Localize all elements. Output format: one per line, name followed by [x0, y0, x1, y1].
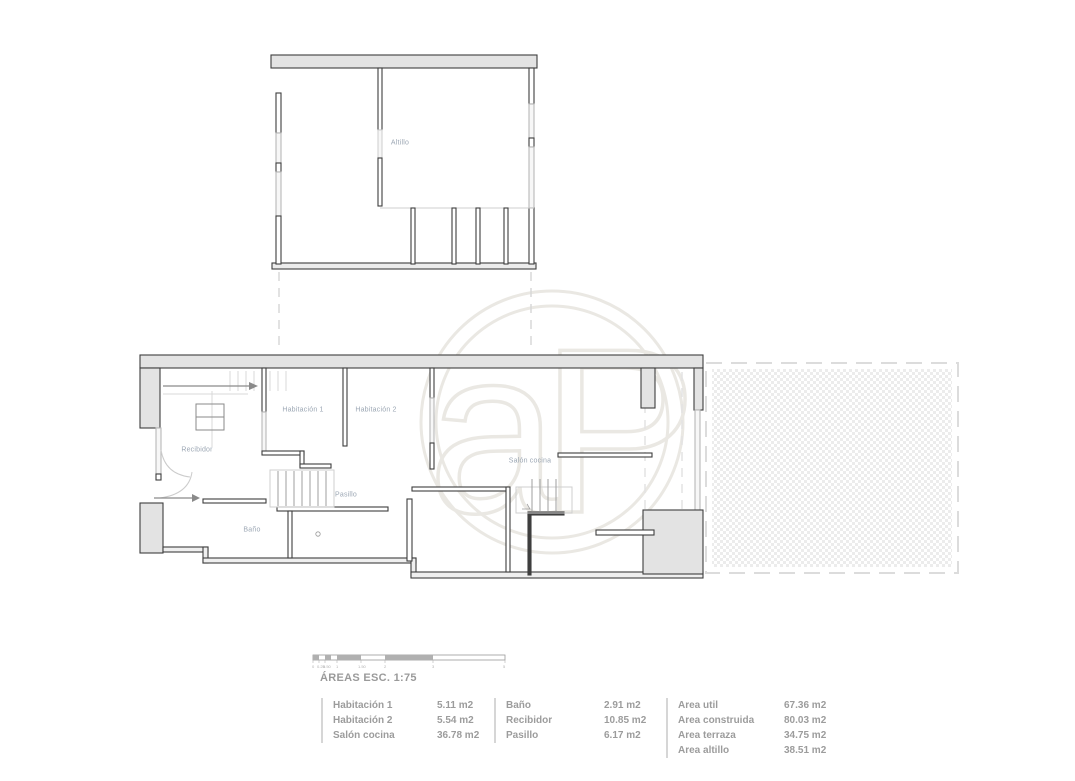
legend-row: Area terraza 34.75 m2	[678, 728, 861, 743]
legend-row-value: 5.54 m2	[437, 715, 474, 726]
areas-legend: Habitación 1 5.11 m2 Habitación 2 5.54 m…	[321, 698, 861, 758]
scale-tick: 2	[384, 664, 387, 669]
legend-row-value: 80.03 m2	[784, 715, 826, 726]
legend-row-value: 6.17 m2	[604, 730, 641, 741]
scale-tick: 1.50	[358, 664, 367, 669]
room-label-recibidor: Recibidor	[181, 447, 212, 454]
legend-row: Habitación 1 5.11 m2	[333, 698, 494, 713]
room-label-habitacion-2: Habitación 2	[355, 407, 396, 414]
legend-row-label: Salón cocina	[333, 730, 437, 741]
legend-row-label: Area altillo	[678, 745, 784, 756]
legend-title: ÁREAS ESC. 1:75	[320, 672, 417, 684]
legend-row-value: 2.91 m2	[604, 700, 641, 711]
scale-tick: 1	[336, 664, 339, 669]
legend-row-value: 34.75 m2	[784, 730, 826, 741]
legend-row: Pasillo 6.17 m2	[506, 728, 666, 743]
legend-row-label: Recibidor	[506, 715, 604, 726]
legend-column-rooms-2: Baño 2.91 m2 Recibidor 10.85 m2 Pasillo …	[494, 698, 666, 743]
legend-column-totals: Area util 67.36 m2 Area construida 80.03…	[666, 698, 861, 758]
altillo-plan	[271, 55, 537, 269]
legend-row-value: 36.78 m2	[437, 730, 479, 741]
legend-row-value: 67.36 m2	[784, 700, 826, 711]
legend-row-label: Pasillo	[506, 730, 604, 741]
legend-row-value: 10.85 m2	[604, 715, 646, 726]
legend-row-label: Baño	[506, 700, 604, 711]
legend-row: Area util 67.36 m2	[678, 698, 861, 713]
legend-row: Recibidor 10.85 m2	[506, 713, 666, 728]
legend-row: Habitación 2 5.54 m2	[333, 713, 494, 728]
floorplan-drawing: aP	[0, 0, 1075, 781]
legend-row-label: Area construida	[678, 715, 784, 726]
room-label-bano: Baño	[243, 527, 260, 534]
legend-row-label: Area terraza	[678, 730, 784, 741]
room-label-pasillo: Pasillo	[335, 492, 357, 499]
scale-tick: 3	[432, 664, 435, 669]
legend-row: Salón cocina 36.78 m2	[333, 728, 494, 743]
legend-row: Area construida 80.03 m2	[678, 713, 861, 728]
room-label-salon-cocina: Salón cocina	[509, 458, 551, 465]
legend-row-label: Habitación 2	[333, 715, 437, 726]
legend-row: Baño 2.91 m2	[506, 698, 666, 713]
legend-row-label: Habitación 1	[333, 700, 437, 711]
scale-tick: 0	[312, 664, 315, 669]
legend-row: Area altillo 38.51 m2	[678, 743, 861, 758]
room-label-habitacion-1: Habitación 1	[282, 407, 323, 414]
room-label-altillo: Altillo	[391, 140, 409, 147]
legend-row-value: 38.51 m2	[784, 745, 826, 756]
terrace-area	[706, 363, 958, 573]
scale-tick: 5	[503, 664, 506, 669]
scale-tick: 0.50	[323, 664, 332, 669]
scale-bar: 0 0.25 0.50 1 1.50 2 3 5	[312, 654, 512, 672]
legend-row-label: Area util	[678, 700, 784, 711]
legend-row-value: 5.11 m2	[437, 700, 473, 711]
legend-column-rooms-1: Habitación 1 5.11 m2 Habitación 2 5.54 m…	[321, 698, 494, 743]
floorplan-page: aP	[0, 0, 1075, 781]
